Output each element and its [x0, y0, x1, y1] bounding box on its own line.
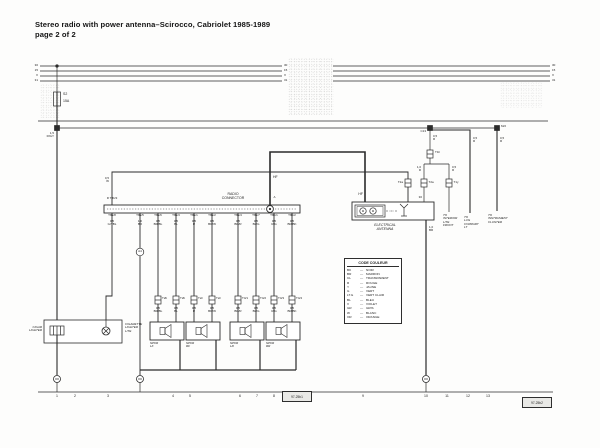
bus-label: 15 [552, 69, 555, 72]
wire-label: 0,5 BR/BK [287, 307, 296, 314]
track-number: 5 [189, 394, 191, 398]
destination-label: TO LUG COMPART LT [464, 216, 479, 230]
track-number: 11 [445, 394, 449, 398]
junction-label: C13 [420, 130, 426, 133]
splice-label: A4 [138, 250, 142, 253]
wire-label: 0,5 BL [174, 307, 178, 314]
hf-label: HF [358, 192, 363, 196]
wire-label: 1,5 R/GY [47, 132, 54, 139]
wire-label: 0,5 R [473, 137, 477, 144]
bus-label: X [284, 74, 286, 77]
pin-label: R T8b/3 [107, 197, 118, 200]
wire-label: 0,5 W [105, 177, 109, 184]
pin-label: T8b/1 [270, 214, 278, 217]
wire-label: 0,5 BL [174, 220, 178, 227]
bus-label: 31 [35, 79, 38, 82]
hf-antenna-lead [270, 152, 365, 205]
wire-label: 0,5 BR/BL [154, 307, 163, 314]
page-subtitle: page 2 of 2 [35, 31, 76, 40]
speaker-name: SPKR LR [230, 342, 238, 349]
connector-label: T2b [180, 297, 185, 300]
pin-label: 30 [419, 196, 422, 199]
wire-label: 0,5 BL/G [253, 307, 260, 314]
connector-label: T1h [435, 151, 440, 154]
fuse-rating: 15A [63, 99, 69, 103]
feed-lines [38, 121, 548, 128]
wire-label: 0,5 R [192, 220, 196, 227]
bus-label: 30 [552, 64, 555, 67]
connector-label: T4/1 [242, 297, 248, 300]
junction-c13 [428, 126, 433, 131]
track-number: 6 [239, 394, 241, 398]
wire-label: 0,5 BR/BK [287, 220, 296, 227]
wire-label: 0,5 R [192, 307, 196, 314]
bus-label: X [552, 74, 554, 77]
connector-label: T2b [162, 297, 167, 300]
junction-m2 [495, 126, 500, 131]
track-number: 2 [74, 394, 76, 398]
speaker-name: SPKR RF [186, 342, 194, 349]
wire-label: 0,5 BR/W [208, 307, 216, 314]
diagram-id: 97-25b1 [282, 391, 312, 402]
track-number: 4 [172, 394, 174, 398]
bus-lines-right [333, 66, 550, 81]
destination-label: TO INTERIOR LITE FRONT [443, 214, 457, 228]
component-label: ELECTRICAL ANTENNA [374, 223, 396, 231]
page-title: Stereo radio with power antenna–Scirocco… [35, 21, 270, 30]
legend-row: OR—ORANGE [347, 315, 399, 319]
destination-label: TO INSTRUMENT CLUSTER [488, 214, 508, 224]
track-number: 9 [362, 394, 364, 398]
color-code-legend: CODE COULEUR BK—NOIR BR—MARRON CL—TRANSP… [344, 258, 402, 324]
bus-label: 31 [284, 79, 287, 82]
track-number: 10 [424, 394, 428, 398]
radio-connector-label: RADIO CONNECTOR [222, 192, 245, 200]
speaker-connectors [155, 296, 295, 304]
pin-label: T8a/4 [234, 214, 242, 217]
connector-label: T2a [398, 181, 403, 184]
pin-label: T8a/7 [252, 214, 260, 217]
wire-label: 0,5 R/G [271, 220, 276, 227]
track-number: 7 [256, 394, 258, 398]
wire-label: 0,5 BR/R [234, 220, 241, 227]
pin-label: T8a/8 [108, 214, 116, 217]
pin-label: T8b/2 [288, 214, 296, 217]
wire-label: 0,5 R [452, 166, 456, 173]
connector-label: T2a [429, 181, 434, 184]
speaker-name: SPKR RR [266, 342, 274, 349]
bus-label: 15 [35, 69, 38, 72]
wire-label: 1,0 BR [138, 220, 142, 227]
bus-label: 30 [35, 64, 38, 67]
component-label: CIGARETTE LIGHTER LITE [125, 323, 142, 333]
component-label: CIGAR LIGHTER [29, 326, 42, 333]
pin-label: T8a/6 [154, 214, 162, 217]
track-number: 13 [486, 394, 490, 398]
lug-compart-wire [432, 130, 470, 213]
track-number: 8 [273, 394, 275, 398]
wire-label: 0,5 R/G [271, 307, 276, 314]
wire-label: 0,5 BL/G [253, 220, 260, 227]
cigar-lighter-box [44, 320, 122, 375]
connector-label: T4/4 [296, 297, 302, 300]
pin-label: T8a/1 [190, 214, 198, 217]
hf-label: HF [273, 175, 278, 179]
wire-label: 0,5 BR/W [208, 220, 216, 227]
diagram-id: 97-25b2 [522, 397, 552, 408]
connector-label: T2c [216, 297, 221, 300]
wire-label: 0,5 GY/BL [108, 220, 117, 227]
legend-title: CODE COULEUR [347, 261, 399, 267]
pin-label: T8a/5 [136, 214, 144, 217]
wiring-diagram-page: Stereo radio with power antenna–Scirocco… [0, 0, 600, 448]
junction-square [55, 126, 60, 131]
wire-label: 0,5 BR/R [234, 307, 241, 314]
antenna-control-wire [112, 172, 408, 205]
wire-label: 1,0 BR [429, 226, 433, 233]
fuse-name: S2 [63, 92, 67, 96]
connector-label: T4/3 [278, 297, 284, 300]
connector-label: T2c [198, 297, 203, 300]
a-label: A [274, 196, 276, 199]
bus-label: 31 [552, 79, 555, 82]
speaker-name: SPKR LF [150, 342, 158, 349]
wire-label: 0,5 BR/BL [154, 220, 163, 227]
track-number: 1 [56, 394, 58, 398]
speaker-boxes [140, 322, 300, 370]
radio-output-wires [106, 213, 292, 375]
wire-label: 1,0 R [417, 166, 421, 173]
ground-symbols [54, 376, 430, 393]
connector-label: T4/2 [260, 297, 266, 300]
bus-label: X [36, 74, 38, 77]
fuse-circuit [54, 65, 61, 320]
schematic-lines [0, 0, 600, 448]
wire-label: 0,5 R [433, 135, 437, 142]
bus-lines-left [40, 66, 282, 81]
wire-label: 0,5 R [500, 137, 504, 144]
bus-label: 15 [284, 69, 287, 72]
track-number: 12 [466, 394, 470, 398]
track-number: 3 [107, 394, 109, 398]
connector-label: T1y [454, 181, 459, 184]
bus-label: 30 [284, 64, 287, 67]
junction-label: M/2 [501, 125, 506, 128]
pin-label: T8a/2 [208, 214, 216, 217]
pin-label: T8a/3 [172, 214, 180, 217]
